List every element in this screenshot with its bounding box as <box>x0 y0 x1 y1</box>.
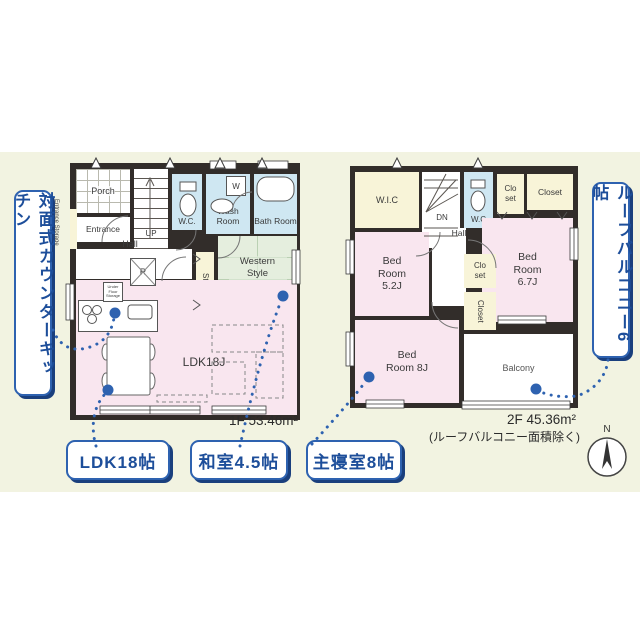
callout-roof-balcony: ルーフバルコニー6帖 <box>592 182 630 358</box>
room-closet-top-small: Clo set <box>497 174 524 214</box>
floor1-area-label: 1F 53.46m² <box>150 413 298 428</box>
room-bed52: Bed Room 5.2J <box>355 232 429 316</box>
callout-shushinshitsu: 主寝室8帖 <box>306 440 402 480</box>
callout-ldk: LDK18帖 <box>66 440 170 480</box>
room-bed8: Bed Room 8J <box>355 320 459 403</box>
wash-label: Wash Room <box>206 206 250 226</box>
room-bath: Bath Room <box>254 174 297 234</box>
closet-top-small-label: Clo set <box>502 184 520 203</box>
up-label: UP <box>136 229 166 238</box>
callout-washitsu: 和室4.5帖 <box>190 440 288 480</box>
porch-label: Porch <box>91 186 115 197</box>
refrigerator-label: R <box>139 267 148 277</box>
floorplan-page: { "callouts": { "left": "対面式カウンターキッチン", … <box>0 0 640 640</box>
hall-1f-label: Hall <box>110 239 150 249</box>
room-balcony: Balcony <box>464 334 573 403</box>
floor1-plan: Porch Entrance UP Hall W.C. Wash Room W … <box>70 163 300 420</box>
closet-mid-label: Closet <box>475 300 485 323</box>
wic-label: W.I.C <box>376 195 398 206</box>
room-closet-mid-small: Clo set <box>464 254 496 288</box>
refrigerator-box: R <box>130 258 156 286</box>
entrance-storage-strip <box>70 209 77 249</box>
dn-label: DN <box>428 213 456 222</box>
floor2-area-note: (ルーフバルコニー面積除く) <box>380 428 580 445</box>
under-floor-storage-box: Under Floor Storage <box>103 282 123 302</box>
washer-box: W <box>226 176 246 196</box>
compass-n-label: N <box>598 424 616 436</box>
floor2-plan: W.I.C DN W.C Clo set Closet Hall Bed Roo… <box>350 166 578 408</box>
washer-label: W <box>232 182 240 191</box>
callout-kitchen: 対面式カウンターキッチン <box>14 190 52 396</box>
room-closet-mid: Closet <box>464 292 496 330</box>
room-wc-1f: W.C. <box>172 174 202 230</box>
room-closet-top: Closet <box>527 174 573 210</box>
bed67-label: Bed Room 6.7J <box>507 251 549 289</box>
entrance-label: Entrance <box>86 224 120 234</box>
room-wic: W.I.C <box>355 172 419 228</box>
closet-mid-small-label: Clo set <box>471 261 489 280</box>
bed52-label: Bed Room 5.2J <box>371 255 413 293</box>
floor2-area-label: 2F 45.36m² <box>430 412 576 427</box>
under-floor-storage-label: Under Floor Storage <box>104 285 122 298</box>
room-porch: Porch <box>76 169 130 213</box>
wc-1f-label: W.C. <box>172 217 202 227</box>
room-hall-2f <box>432 228 466 306</box>
balcony-label: Balcony <box>502 363 534 374</box>
bath-label: Bath Room <box>254 216 297 226</box>
bed8-label: Bed Room 8J <box>386 349 428 374</box>
kitchen-counter <box>78 300 158 332</box>
ldk-label: LDK18J <box>174 356 234 370</box>
hall-2f-label: Hall <box>444 229 474 239</box>
closet-top-label: Closet <box>538 187 562 197</box>
